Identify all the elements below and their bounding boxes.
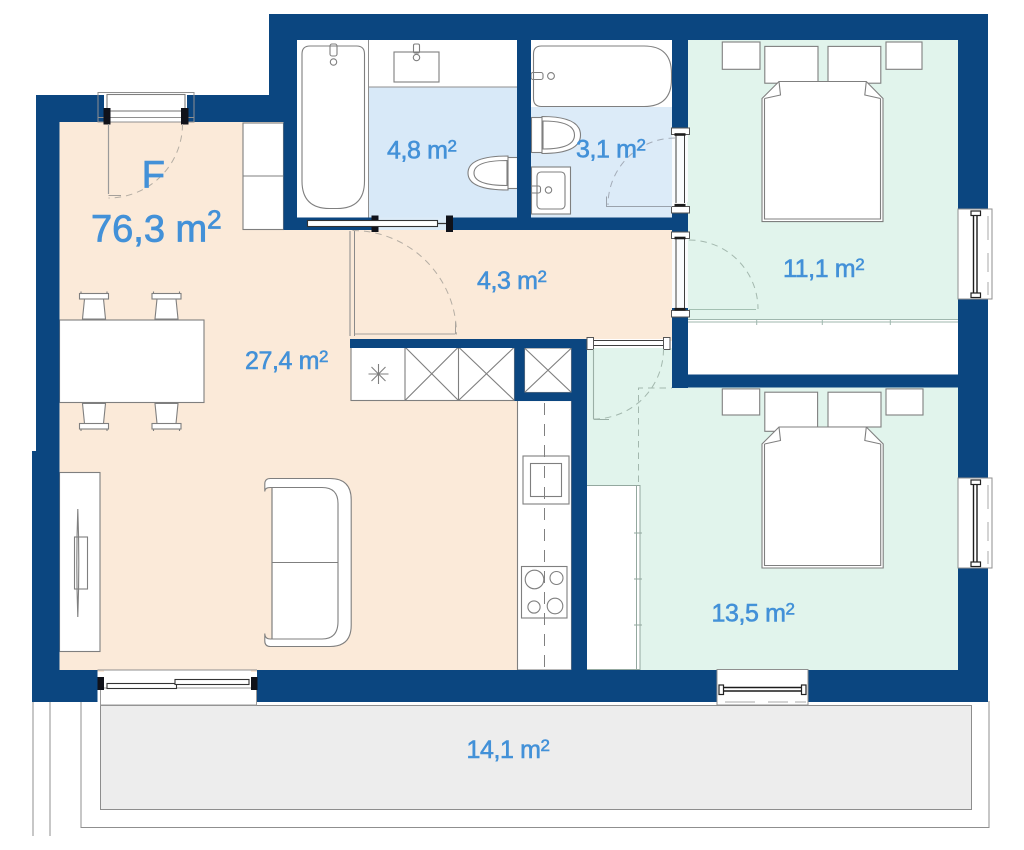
- svg-text:14,1 m2: 14,1 m2: [467, 736, 550, 764]
- svg-text:11,1 m2: 11,1 m2: [783, 255, 864, 283]
- svg-text:13,5 m2: 13,5 m2: [712, 600, 795, 628]
- svg-text:76,3 m2: 76,3 m2: [91, 205, 222, 251]
- svg-text:27,4 m2: 27,4 m2: [245, 347, 328, 375]
- svg-text:F: F: [142, 154, 165, 196]
- svg-text:3,1 m2: 3,1 m2: [576, 136, 646, 164]
- svg-text:4,3 m2: 4,3 m2: [477, 267, 547, 295]
- svg-text:4,8 m2: 4,8 m2: [387, 137, 457, 165]
